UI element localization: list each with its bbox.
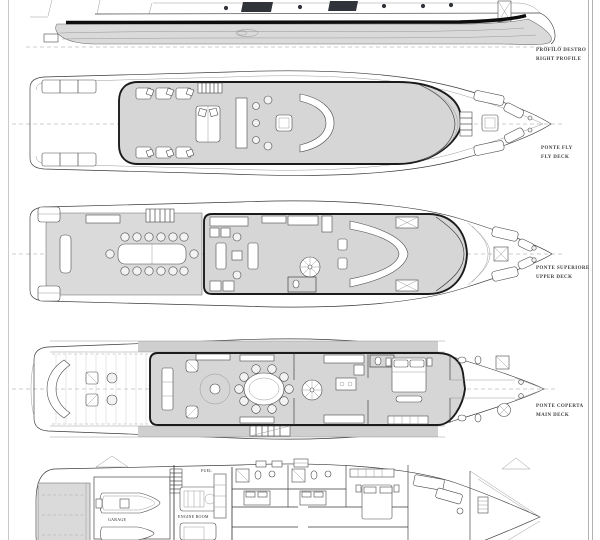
deck-label-profile: PROFILO DESTRO RIGHT PROFILE (536, 47, 586, 63)
tv-cabinet (262, 216, 286, 223)
deck-label-upper: PONTE SUPERIORE UPPER DECK (536, 265, 590, 281)
stern-platform (44, 34, 58, 42)
fuel-label: FUEL (201, 468, 212, 473)
bow-steps (460, 112, 472, 136)
fly-deck-row (0, 66, 600, 180)
lower-deck-row: GARAGE ENGINE ROOM FUEL (0, 455, 600, 540)
guest-cabin-2 (288, 465, 346, 507)
yacht-general-arrangement: PROFILO DESTRO RIGHT PROFILE (0, 0, 600, 540)
deck-vents (256, 459, 308, 467)
tv-cabinet (196, 354, 230, 360)
deck-label-fly-it: PONTE FLY (541, 145, 573, 152)
guest-cabin-1 (232, 465, 288, 507)
awning-marker-left (96, 456, 128, 467)
deck-label-main-it: PONTE COPERTA (536, 403, 584, 410)
stair-hatch (198, 83, 222, 93)
spiral-staircase (302, 380, 322, 400)
engine-starboard (180, 523, 216, 540)
side-boarding-stair (250, 426, 290, 436)
main-deck-row (0, 328, 600, 450)
deck-label-fly: PONTE FLY FLY DECK (541, 145, 573, 161)
upper-deck-drawing (0, 193, 600, 315)
center-sunpad (196, 106, 220, 142)
tender-2 (101, 527, 155, 540)
tender (96, 493, 160, 513)
crew-cabin (413, 471, 470, 540)
engine-room-label: ENGINE ROOM (178, 514, 209, 519)
bow-locker (470, 471, 540, 540)
deck-label-main-en: MAIN DECK (536, 412, 584, 419)
aft-stair-hatch (146, 209, 174, 222)
swim-platform (38, 483, 90, 540)
deck-label-upper-it: PONTE SUPERIORE (536, 265, 590, 272)
bow-seating (473, 90, 525, 156)
deck-label-profile-it: PROFILO DESTRO (536, 47, 586, 54)
deck-label-fly-en: FLY DECK (541, 154, 573, 161)
foredeck-sunpads (491, 226, 535, 282)
profile-drawing (0, 0, 600, 66)
hull-accent-band (66, 16, 526, 23)
stern-bench (60, 235, 71, 273)
hull (44, 16, 551, 45)
windows (224, 1, 453, 12)
deck-label-upper-en: UPPER DECK (536, 274, 590, 281)
garage-label: GARAGE (108, 517, 126, 522)
upper-deck-row (0, 193, 600, 315)
deck-label-main: PONTE COPERTA MAIN DECK (536, 403, 584, 419)
fly-deck-drawing (0, 66, 600, 180)
vip-cabin (350, 465, 408, 540)
engine-port (180, 487, 216, 511)
profile-view-row (0, 0, 600, 66)
stern-sofa (47, 360, 70, 418)
portuguese-bridge (468, 223, 490, 285)
stern-stairs (42, 80, 96, 166)
awning-marker-right (502, 458, 530, 469)
main-deck-drawing (0, 328, 600, 450)
serving-console (86, 215, 120, 223)
fuel-tank (214, 474, 226, 518)
lower-deck-drawing: GARAGE ENGINE ROOM FUEL (0, 455, 600, 540)
spiral-staircase (300, 257, 320, 277)
deck-label-profile-en: RIGHT PROFILE (536, 56, 586, 63)
